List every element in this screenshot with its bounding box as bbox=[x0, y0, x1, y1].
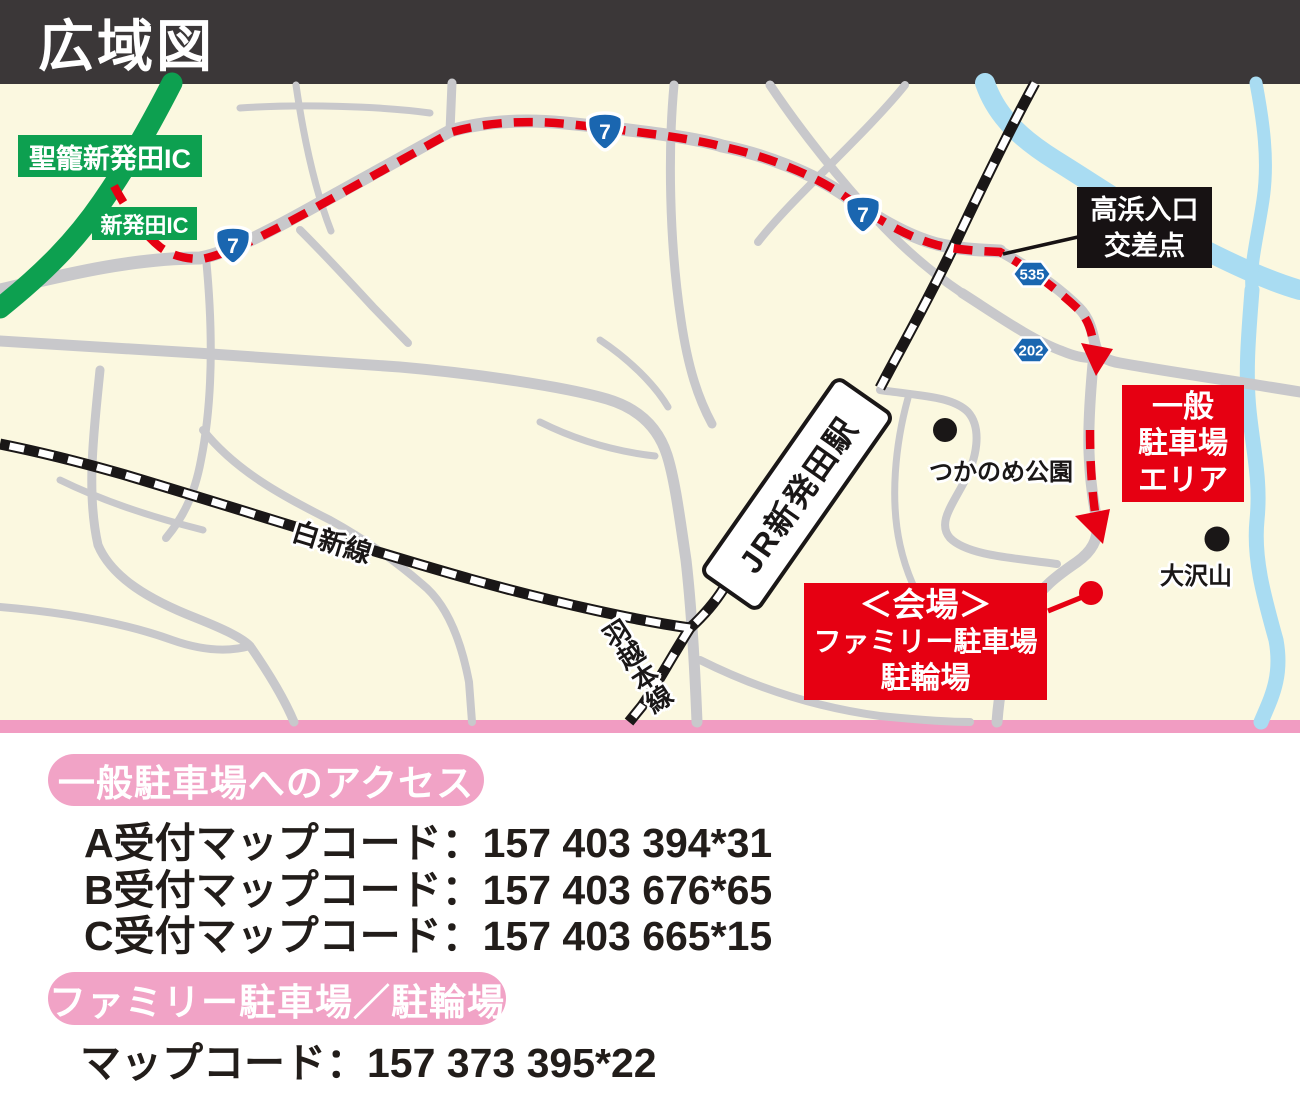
route-202-shield: 202 bbox=[1012, 338, 1050, 363]
parking-box-line2: 駐車場 bbox=[1122, 425, 1244, 462]
svg-text:7: 7 bbox=[227, 235, 239, 258]
venue-box: ＜会場＞ ファミリー駐車場 駐輪場 bbox=[804, 583, 1047, 700]
road-minor bbox=[92, 370, 294, 722]
park-dot bbox=[933, 418, 957, 442]
poi-label-mountain: 大沢山 bbox=[1146, 556, 1246, 591]
parking-box-line3: エリア bbox=[1122, 462, 1244, 499]
page: 広域図 bbox=[0, 0, 1300, 1112]
venue-dot bbox=[1079, 581, 1103, 605]
junction-label-takahama: 高浜入口 交差点 bbox=[1077, 187, 1212, 268]
svg-text:7: 7 bbox=[857, 204, 869, 227]
route-7-shield: 7 bbox=[588, 113, 623, 150]
ic-label-seiro-shibata: 聖籠新発田IC bbox=[18, 135, 202, 177]
venue-box-line3: 駐輪場 bbox=[804, 660, 1047, 697]
poi-label-park: つかのめ公園 bbox=[920, 452, 1082, 487]
river-east-upper bbox=[1252, 83, 1266, 290]
ic-label-shibata: 新発田IC bbox=[92, 207, 197, 240]
venue-connector-line bbox=[1048, 596, 1085, 611]
road-minor bbox=[450, 83, 452, 131]
route-535-shield: 535 bbox=[1013, 262, 1051, 287]
svg-text:535: 535 bbox=[1019, 267, 1044, 284]
parking-box-line1: 一般 bbox=[1122, 388, 1244, 425]
red-dashed-route-2 bbox=[1090, 430, 1095, 512]
svg-text:7: 7 bbox=[599, 121, 611, 144]
road-minor bbox=[240, 106, 430, 113]
svg-text:202: 202 bbox=[1018, 343, 1043, 360]
general-parking-area-box: 一般 駐車場 エリア bbox=[1122, 385, 1244, 502]
road-minor bbox=[300, 230, 408, 343]
junction-label-line1: 高浜入口 bbox=[1077, 192, 1212, 228]
route-7-shield: 7 bbox=[846, 196, 881, 233]
road-minor bbox=[540, 422, 655, 456]
venue-box-line2: ファミリー駐車場 bbox=[804, 623, 1047, 660]
junction-label-line2: 交差点 bbox=[1077, 228, 1212, 264]
road-minor bbox=[203, 430, 472, 722]
mountain-dot bbox=[1205, 527, 1230, 552]
road-minor bbox=[770, 85, 962, 293]
river-east-lower bbox=[1247, 290, 1278, 722]
junction-pointer-line bbox=[1003, 237, 1078, 254]
venue-box-line1: ＜会場＞ bbox=[804, 586, 1047, 623]
